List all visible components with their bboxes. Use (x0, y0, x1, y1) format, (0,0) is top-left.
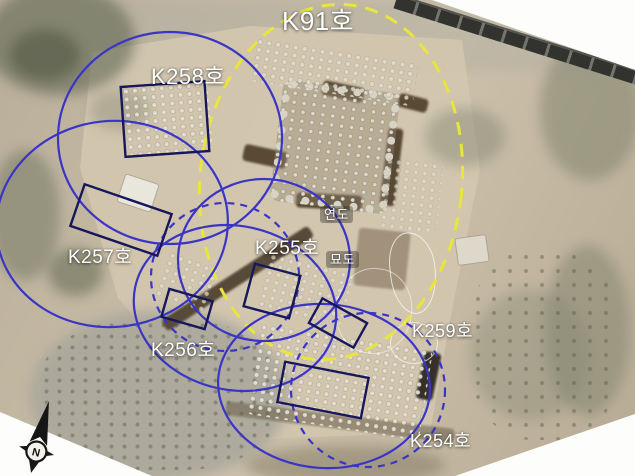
tomb-circle-k257 (0, 109, 238, 338)
feature-rect-k254 (277, 362, 368, 418)
excavation-aerial-figure: K91호 K258호 K257호 K255호 연도 묘도 K256호 K259호… (0, 0, 635, 476)
tomb-label-k257: K257호 (68, 248, 132, 267)
feature-rect-k257 (70, 184, 171, 256)
site-label-k91: K91호 (282, 8, 354, 34)
feature-rect-k256 (161, 289, 212, 329)
tomb-label-k255: K255호 (255, 239, 319, 258)
tomb-label-k254: K254호 (410, 432, 471, 450)
feature-rect-k258 (121, 81, 210, 157)
tomb-label-k259: K259호 (412, 322, 473, 340)
feature-label-flue: 연도 (320, 206, 353, 223)
feature-rect-k255 (244, 264, 301, 319)
tomb-label-k258: K258호 (151, 66, 225, 88)
tomb-label-k256: K256호 (151, 341, 215, 360)
feature-label-passage: 묘도 (326, 251, 359, 268)
